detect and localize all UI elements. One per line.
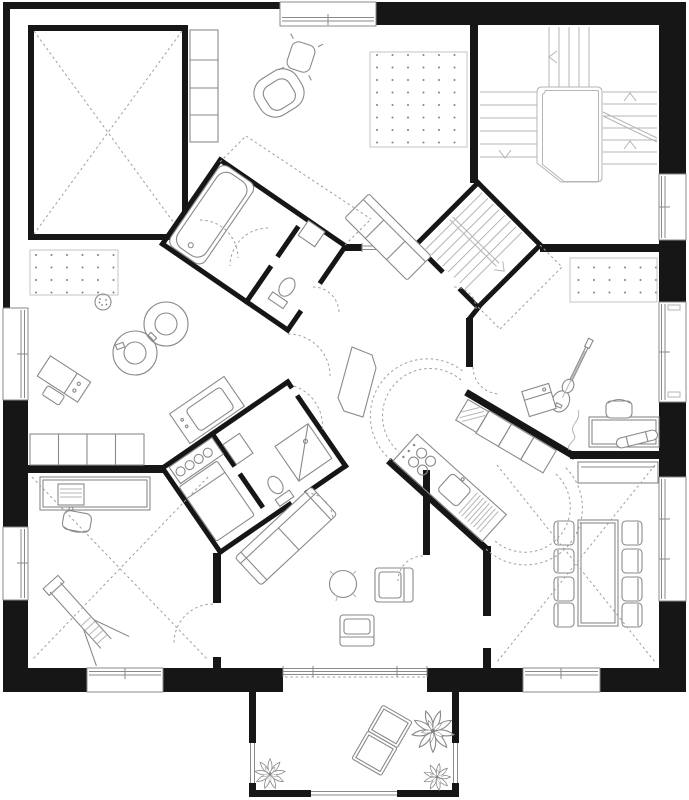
desk-chair bbox=[61, 510, 92, 535]
dotted-rug bbox=[570, 258, 657, 302]
sideboard bbox=[578, 462, 658, 483]
shelf-unit bbox=[190, 30, 218, 142]
electric-guitar bbox=[548, 336, 598, 415]
nw-bathroom-pod bbox=[162, 160, 345, 330]
guitar-amp bbox=[522, 383, 556, 416]
guitar-cable bbox=[569, 410, 579, 450]
dining-chair bbox=[622, 603, 642, 627]
coffee-table bbox=[330, 571, 357, 602]
balcony bbox=[249, 692, 459, 797]
kitchen-counter bbox=[393, 434, 506, 541]
armchair bbox=[340, 615, 374, 646]
toilet bbox=[268, 274, 300, 309]
play-ball bbox=[95, 294, 111, 310]
plant bbox=[409, 706, 458, 756]
bed bbox=[179, 461, 254, 541]
cabinet-row bbox=[30, 434, 144, 465]
stair-hall bbox=[480, 27, 657, 182]
appliance-cabinet bbox=[170, 376, 245, 443]
floor-plan-page bbox=[0, 0, 689, 800]
door-swings bbox=[32, 136, 582, 660]
study-desk bbox=[40, 477, 150, 511]
easel bbox=[34, 567, 129, 666]
office-chair bbox=[606, 400, 632, 419]
bath-shelf bbox=[298, 221, 325, 247]
floor-plan bbox=[0, 0, 689, 800]
void-room bbox=[28, 25, 188, 240]
dining-chair bbox=[622, 577, 642, 601]
dining-chair bbox=[554, 577, 574, 601]
dining-chair bbox=[554, 603, 574, 627]
toy-workbench bbox=[30, 356, 90, 413]
dining-room bbox=[497, 462, 658, 662]
lounge-chair bbox=[352, 705, 412, 776]
kitchen bbox=[393, 399, 556, 542]
dotted-rug bbox=[30, 250, 118, 295]
bench-sofa bbox=[345, 194, 431, 280]
living-room bbox=[235, 487, 425, 677]
dining-chair bbox=[622, 549, 642, 573]
dining-chair bbox=[622, 521, 642, 545]
toilet bbox=[263, 472, 294, 506]
hall-table bbox=[338, 347, 376, 417]
dotted-rug bbox=[370, 52, 467, 147]
ne-stair-pod bbox=[416, 183, 540, 307]
plant bbox=[250, 755, 289, 794]
armchair bbox=[375, 568, 413, 602]
toy-racetrack bbox=[113, 302, 188, 375]
